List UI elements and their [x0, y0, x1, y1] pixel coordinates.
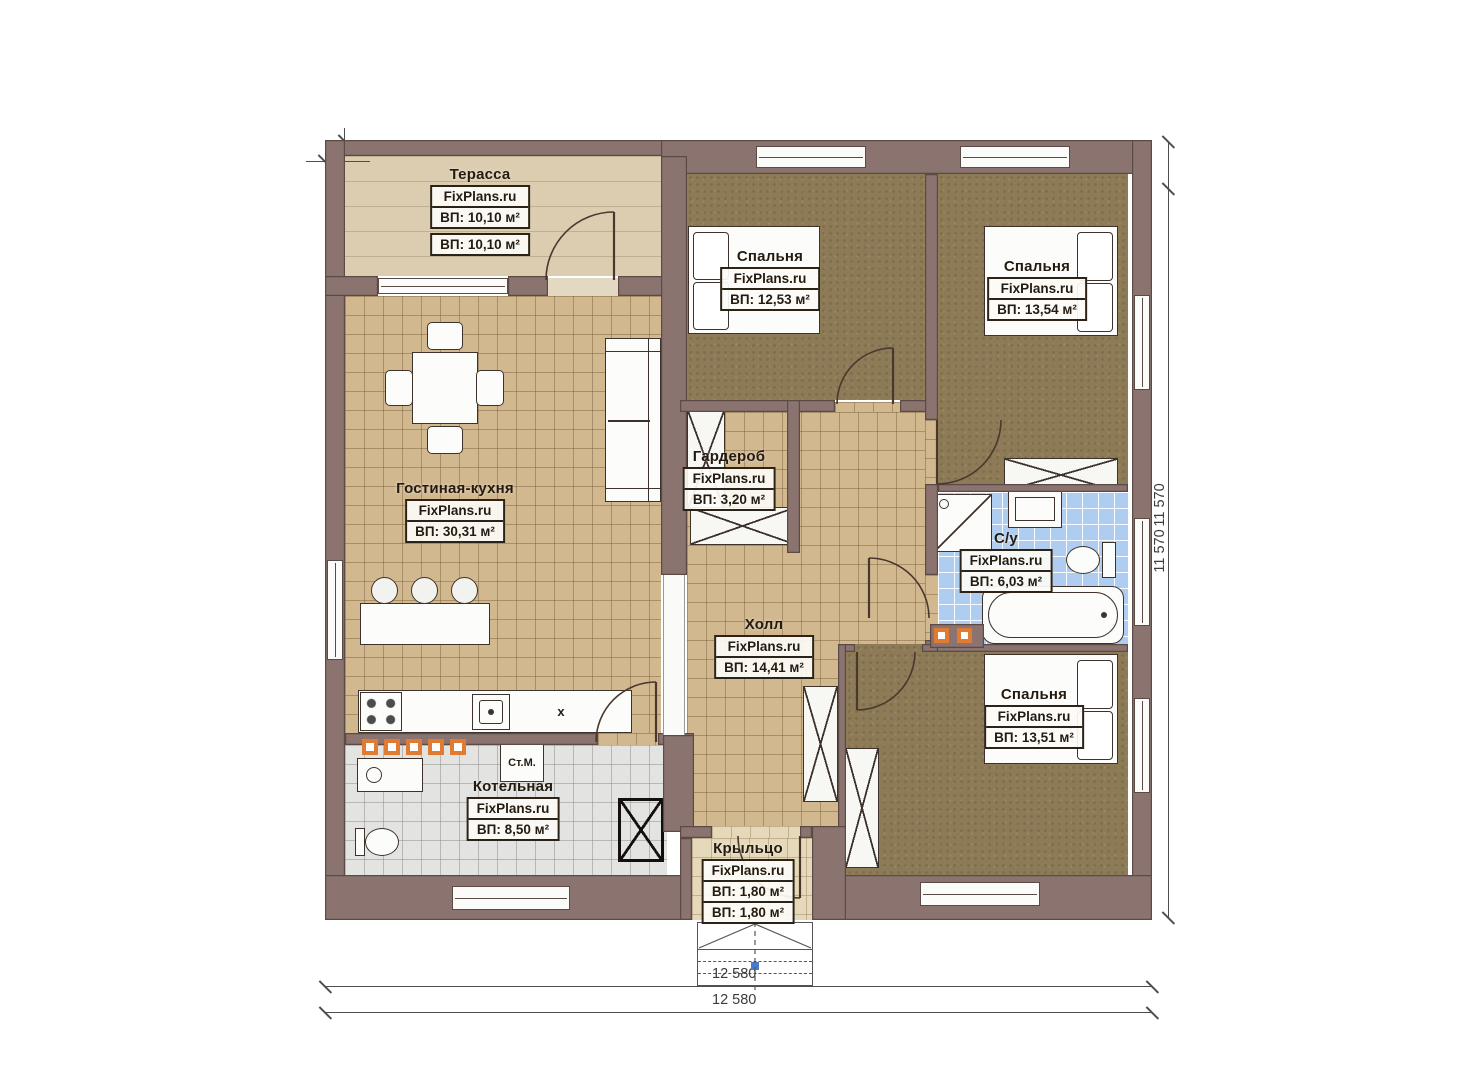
- door-arc: [869, 558, 929, 618]
- room-title: Гардероб: [693, 448, 766, 465]
- room-info-box: FixPlans.ru ВП: 3,20 м²: [683, 467, 776, 511]
- brand-label: FixPlans.ru: [722, 269, 818, 288]
- room-area-label: ВП: 3,20 м²: [685, 488, 774, 509]
- room-area-label: ВП: 13,54 м²: [989, 298, 1085, 319]
- room-info-box: FixPlans.ru ВП: 12,53 м²: [720, 267, 820, 311]
- room-area-label: ВП: 1,80 м²: [704, 880, 793, 901]
- room-area-label: ВП: 10,10 м²: [432, 235, 528, 254]
- room-label-hall: Холл FixPlans.ru ВП: 14,41 м²: [714, 616, 814, 679]
- room-title: Спальня: [1004, 258, 1070, 275]
- room-area-label: ВП: 8,50 м²: [469, 818, 558, 839]
- room-label-living-kitchen: Гостиная-кухня FixPlans.ru ВП: 30,31 м²: [396, 480, 514, 543]
- brand-label: FixPlans.ru: [685, 469, 774, 488]
- door-arc: [546, 212, 614, 280]
- room-title: С/у: [994, 530, 1018, 547]
- room-title: Спальня: [737, 248, 803, 265]
- door-arc: [596, 682, 656, 742]
- room-area-label: ВП: 30,31 м²: [407, 520, 503, 541]
- room-info-box: FixPlans.ru ВП: 1,80 м² ВП: 1,80 м²: [702, 859, 795, 924]
- room-label-terrace: Терасса FixPlans.ru ВП: 10,10 м² ВП: 10,…: [430, 166, 530, 256]
- brand-label: FixPlans.ru: [432, 187, 528, 206]
- brand-label: FixPlans.ru: [962, 551, 1051, 570]
- brand-label: FixPlans.ru: [716, 637, 812, 656]
- room-info-box: FixPlans.ru ВП: 14,41 м²: [714, 635, 814, 679]
- brand-label: FixPlans.ru: [469, 799, 558, 818]
- room-info-box: FixPlans.ru ВП: 13,51 м²: [984, 705, 1084, 749]
- door-arc: [857, 652, 915, 710]
- brand-label: FixPlans.ru: [989, 279, 1085, 298]
- brand-label: FixPlans.ru: [407, 501, 503, 520]
- room-label-bathroom: С/у FixPlans.ru ВП: 6,03 м²: [960, 530, 1053, 593]
- room-label-bedroom-2: Спальня FixPlans.ru ВП: 13,54 м²: [987, 258, 1087, 321]
- room-area-label-duplicate: ВП: 1,80 м²: [704, 901, 793, 922]
- room-label-wardrobe: Гардероб FixPlans.ru ВП: 3,20 м²: [683, 448, 776, 511]
- room-label-boiler: Котельная FixPlans.ru ВП: 8,50 м²: [467, 778, 560, 841]
- room-area-label: ВП: 10,10 м²: [432, 206, 528, 227]
- room-label-bedroom-3: Спальня FixPlans.ru ВП: 13,51 м²: [984, 686, 1084, 749]
- room-title: Крыльцо: [713, 840, 783, 857]
- room-title: Холл: [745, 616, 783, 633]
- room-label-porch: Крыльцо FixPlans.ru ВП: 1,80 м² ВП: 1,80…: [702, 840, 795, 924]
- room-info-box: FixPlans.ru ВП: 30,31 м²: [405, 499, 505, 543]
- room-title: Гостиная-кухня: [396, 480, 514, 497]
- door-arc: [837, 348, 893, 404]
- floor-plan-canvas: x Ст.М.: [0, 0, 1473, 1080]
- room-title: Котельная: [473, 778, 553, 795]
- room-title: Спальня: [1001, 686, 1067, 703]
- room-area-label: ВП: 13,51 м²: [986, 726, 1082, 747]
- room-area-label: ВП: 14,41 м²: [716, 656, 812, 677]
- room-area-label: ВП: 12,53 м²: [722, 288, 818, 309]
- room-info-box: FixPlans.ru ВП: 6,03 м²: [960, 549, 1053, 593]
- room-label-bedroom-1: Спальня FixPlans.ru ВП: 12,53 м²: [720, 248, 820, 311]
- door-arc: [937, 420, 1001, 484]
- room-area-label: ВП: 6,03 м²: [962, 570, 1051, 591]
- brand-label: FixPlans.ru: [986, 707, 1082, 726]
- room-title: Терасса: [450, 166, 511, 183]
- room-info-box: FixPlans.ru ВП: 10,10 м²: [430, 185, 530, 229]
- brand-label: FixPlans.ru: [704, 861, 793, 880]
- room-info-box-duplicate: ВП: 10,10 м²: [430, 233, 530, 256]
- room-info-box: FixPlans.ru ВП: 8,50 м²: [467, 797, 560, 841]
- room-info-box: FixPlans.ru ВП: 13,54 м²: [987, 277, 1087, 321]
